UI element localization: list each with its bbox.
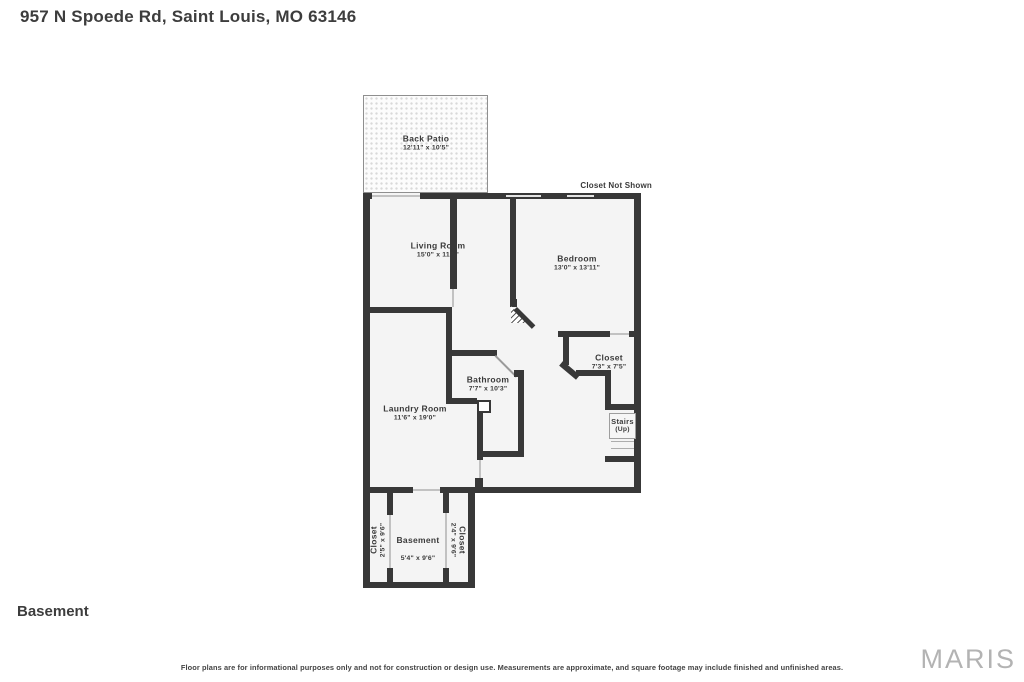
stairs-top-wall xyxy=(605,404,641,410)
maris-logo: MARIS xyxy=(920,644,1016,675)
closet-side-wall xyxy=(605,376,611,407)
bathroom-right-wall xyxy=(518,375,524,457)
closet-not-shown-note: Closet Not Shown xyxy=(540,181,652,190)
bedroom-window xyxy=(567,193,594,199)
wall-top-segment xyxy=(420,193,506,199)
stair-tread xyxy=(611,441,634,442)
back-patio-label: Back Patio 12'11" x 10'5" xyxy=(403,133,449,152)
basement-closet-door xyxy=(389,515,391,568)
bathroom-upper-wall xyxy=(452,398,477,404)
basement-closet-right-label: Closet 2'4" x 9'6" xyxy=(448,523,467,558)
bathroom-bottom-wall xyxy=(483,451,524,457)
stairs-label: Stairs (Up) xyxy=(609,413,636,439)
hall-opening xyxy=(452,289,454,307)
main-floor-area xyxy=(363,193,641,493)
basement-closet-left-label: Closet 2'5" x 9'6" xyxy=(368,523,387,558)
floor-plan-page: 957 N Spoede Rd, Saint Louis, MO 63146 B… xyxy=(0,0,1024,682)
stair-tread xyxy=(611,448,634,449)
basement-bottom-wall xyxy=(363,582,475,588)
basement-room-label: Basement 5'4" x 9'6" xyxy=(396,535,439,563)
floor-label: Basement xyxy=(17,603,89,620)
laundry-top-wall xyxy=(363,307,452,313)
laundry-room-label: Laundry Room 11'6" x 19'0" xyxy=(383,403,447,422)
bedroom-left-wall xyxy=(510,199,516,299)
closet-label: Closet 7'3" x 7'5" xyxy=(592,352,627,371)
bedroom-label: Bedroom 13'0" x 13'11" xyxy=(554,253,600,272)
wall-stub xyxy=(475,478,483,488)
closet-opening xyxy=(610,333,631,335)
basement-closet-wall xyxy=(443,568,449,582)
plumbing-fixture xyxy=(477,400,491,413)
basement-closet-wall xyxy=(387,568,393,582)
bathroom-label: Bathroom 7'7" x 10'3" xyxy=(467,374,510,393)
patio-door-opening xyxy=(372,195,420,197)
stairs-bottom-wall xyxy=(605,456,638,462)
closet-door-jamb xyxy=(629,331,636,337)
basement-closet-door xyxy=(445,513,447,568)
laundry-hall-opening xyxy=(479,460,481,478)
bathroom-top-wall xyxy=(452,350,497,356)
page-title: 957 N Spoede Rd, Saint Louis, MO 63146 xyxy=(20,7,356,27)
bedroom-door-jamb xyxy=(510,299,517,307)
basement-right-wall xyxy=(468,493,475,588)
laundry-right-wall xyxy=(446,313,452,404)
living-room-label: Living Room 15'0" x 11'5" xyxy=(411,240,466,259)
basement-closet-wall xyxy=(387,493,393,515)
wall-top-segment xyxy=(541,193,567,199)
bathroom-left-wall xyxy=(477,412,483,460)
basement-doorway-opening xyxy=(413,489,440,491)
basement-closet-wall xyxy=(443,493,449,513)
wall-right-outer xyxy=(634,193,641,493)
disclaimer-text: Floor plans are for informational purpos… xyxy=(0,663,1024,672)
